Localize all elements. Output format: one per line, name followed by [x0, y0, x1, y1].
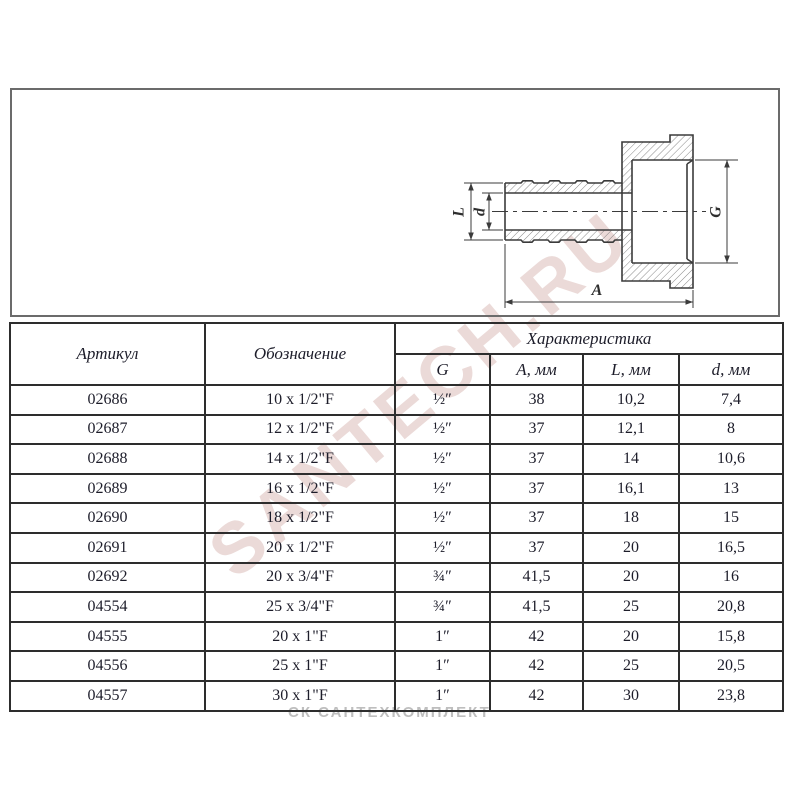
cell-d_mm: 15,8 — [679, 622, 783, 652]
cell-a_mm: 37 — [490, 503, 583, 533]
cell-d_mm: 15 — [679, 503, 783, 533]
cell-l_mm: 12,1 — [583, 415, 679, 445]
header-a-mm: A, мм — [490, 354, 583, 385]
cell-article: 02690 — [10, 503, 205, 533]
dimension-d-label: d — [472, 207, 489, 216]
cell-article: 02687 — [10, 415, 205, 445]
cell-l_mm: 20 — [583, 533, 679, 563]
cell-article: 04556 — [10, 651, 205, 681]
cell-article: 04554 — [10, 592, 205, 622]
cell-g_inch: ½″ — [395, 533, 490, 563]
dimension-A-label: A — [591, 282, 603, 299]
header-designation: Обозначение — [205, 323, 395, 385]
cell-g_inch: ½″ — [395, 474, 490, 504]
cell-g_inch: ¾″ — [395, 592, 490, 622]
cell-g_inch: ½″ — [395, 415, 490, 445]
cell-l_mm: 18 — [583, 503, 679, 533]
cell-d_mm: 20,8 — [679, 592, 783, 622]
cell-d_mm: 20,5 — [679, 651, 783, 681]
cell-a_mm: 37 — [490, 415, 583, 445]
table-row: 0268712 x 1/2"F½″3712,18 — [10, 415, 783, 445]
cell-a_mm: 38 — [490, 385, 583, 415]
cell-a_mm: 42 — [490, 651, 583, 681]
spec-table-head: Артикул Обозначение Характеристика G A, … — [10, 323, 783, 385]
cell-g_inch: ½″ — [395, 503, 490, 533]
document-page: { "watermarks": { "diagonal": "SANTECH.R… — [0, 0, 800, 800]
cell-designation: 20 x 1"F — [205, 622, 395, 652]
table-row: 0269120 x 1/2"F½″372016,5 — [10, 533, 783, 563]
cell-l_mm: 16,1 — [583, 474, 679, 504]
cell-designation: 14 x 1/2"F — [205, 444, 395, 474]
cell-a_mm: 42 — [490, 681, 583, 711]
header-l-mm: L, мм — [583, 354, 679, 385]
cell-l_mm: 25 — [583, 592, 679, 622]
cell-l_mm: 30 — [583, 681, 679, 711]
header-d-mm: d, мм — [679, 354, 783, 385]
cell-designation: 12 x 1/2"F — [205, 415, 395, 445]
cell-designation: 10 x 1/2"F — [205, 385, 395, 415]
cell-g_inch: ¾″ — [395, 563, 490, 593]
cell-a_mm: 37 — [490, 444, 583, 474]
cell-l_mm: 20 — [583, 622, 679, 652]
table-row: 0268610 x 1/2"F½″3810,27,4 — [10, 385, 783, 415]
table-row: 0455520 x 1"F1″422015,8 — [10, 622, 783, 652]
cell-d_mm: 8 — [679, 415, 783, 445]
cell-article: 04555 — [10, 622, 205, 652]
table-row: 0455425 x 3/4"F¾″41,52520,8 — [10, 592, 783, 622]
header-characteristic: Характеристика — [395, 323, 783, 354]
table-row: 0268916 x 1/2"F½″3716,113 — [10, 474, 783, 504]
cell-article: 04557 — [10, 681, 205, 711]
cell-designation: 16 x 1/2"F — [205, 474, 395, 504]
cell-article: 02691 — [10, 533, 205, 563]
cell-designation: 30 x 1"F — [205, 681, 395, 711]
cell-designation: 25 x 1"F — [205, 651, 395, 681]
cell-g_inch: 1″ — [395, 622, 490, 652]
cell-g_inch: ½″ — [395, 385, 490, 415]
cell-l_mm: 20 — [583, 563, 679, 593]
cell-d_mm: 13 — [679, 474, 783, 504]
cell-a_mm: 41,5 — [490, 563, 583, 593]
cell-d_mm: 16,5 — [679, 533, 783, 563]
cell-d_mm: 23,8 — [679, 681, 783, 711]
cell-d_mm: 16 — [679, 563, 783, 593]
table-row: 0268814 x 1/2"F½″371410,6 — [10, 444, 783, 474]
cell-a_mm: 41,5 — [490, 592, 583, 622]
cell-l_mm: 14 — [583, 444, 679, 474]
cell-l_mm: 25 — [583, 651, 679, 681]
cell-g_inch: ½″ — [395, 444, 490, 474]
cell-l_mm: 10,2 — [583, 385, 679, 415]
cell-designation: 20 x 1/2"F — [205, 533, 395, 563]
cell-designation: 20 x 3/4"F — [205, 563, 395, 593]
header-article: Артикул — [10, 323, 205, 385]
cell-d_mm: 7,4 — [679, 385, 783, 415]
cell-designation: 18 x 1/2"F — [205, 503, 395, 533]
cell-a_mm: 37 — [490, 474, 583, 504]
table-row: 0269018 x 1/2"F½″371815 — [10, 503, 783, 533]
cell-designation: 25 x 3/4"F — [205, 592, 395, 622]
cell-article: 02689 — [10, 474, 205, 504]
table-row: 0455625 x 1"F1″422520,5 — [10, 651, 783, 681]
cell-article: 02688 — [10, 444, 205, 474]
header-g: G — [395, 354, 490, 385]
table-row: 0269220 x 3/4"F¾″41,52016 — [10, 563, 783, 593]
dimension-L-label: L — [451, 207, 468, 218]
cell-a_mm: 37 — [490, 533, 583, 563]
table-row: 0455730 x 1"F1″423023,8 — [10, 681, 783, 711]
cell-g_inch: 1″ — [395, 651, 490, 681]
cell-article: 02692 — [10, 563, 205, 593]
dimension-G-label: G — [708, 206, 725, 218]
cell-g_inch: 1″ — [395, 681, 490, 711]
spec-table: Артикул Обозначение Характеристика G A, … — [9, 322, 784, 712]
cell-d_mm: 10,6 — [679, 444, 783, 474]
cell-article: 02686 — [10, 385, 205, 415]
spec-table-body: 0268610 x 1/2"F½″3810,27,40268712 x 1/2"… — [10, 385, 783, 711]
cell-a_mm: 42 — [490, 622, 583, 652]
